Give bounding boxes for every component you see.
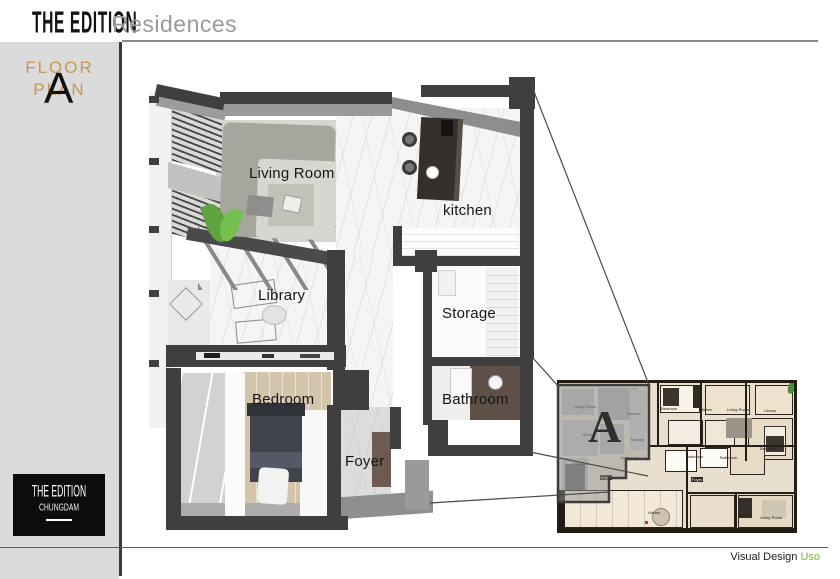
slide: THE EDITION Residences FLOOR PLAN A THE … [0, 0, 840, 579]
coffee-table [282, 194, 303, 213]
credit: Visual Design Uso [560, 551, 820, 563]
footer-logo-box: THE EDITION CHUNGDAM [13, 474, 105, 536]
footer-logo-line2: CHUNGDAM [20, 502, 98, 514]
facade-tick-5 [149, 360, 159, 367]
inset-label: Living Room [760, 515, 782, 520]
plan-letter: A [44, 64, 73, 114]
wall-hall-block [415, 250, 437, 272]
storage-box [438, 270, 456, 296]
inset-wall [557, 528, 797, 533]
inset-label: Bedroom [661, 406, 677, 411]
inset-label: Kitchen [699, 407, 712, 412]
label-bedroom: Bedroom [252, 391, 314, 408]
label-library: Library [258, 287, 305, 304]
inset-wall [557, 380, 797, 383]
inset-bed [663, 388, 679, 406]
wall-storage-left [423, 262, 432, 360]
desk-item-1 [262, 354, 274, 358]
inset-sofa [726, 418, 752, 438]
top-soffit [222, 104, 392, 116]
wall-corner-block [509, 77, 535, 109]
inset-label: Kitchen [627, 411, 640, 416]
inset-label: Bedroom [760, 446, 776, 451]
wall-top-right [421, 85, 513, 97]
inset-room [690, 495, 735, 528]
wall-foyer-left-column [327, 405, 341, 530]
wall-top [220, 92, 392, 104]
side-table [246, 195, 274, 218]
inset-label: Library [764, 408, 776, 413]
inset-wall [557, 490, 565, 530]
inset-wall [686, 492, 796, 494]
bedroom-right-wall [300, 410, 327, 516]
label-kitchen: kitchen [443, 202, 492, 219]
footer-logo-line1: THE EDITION [23, 483, 95, 501]
inset-label: Bathroom [720, 455, 737, 460]
footer-divider [0, 547, 828, 548]
wall-foyer-right [390, 407, 401, 449]
inset-room [668, 420, 703, 445]
facade-tick-2 [149, 158, 159, 165]
bed-blanket [250, 452, 302, 468]
bed-pillow [257, 467, 289, 505]
desk-laptop [204, 353, 220, 358]
inset-wall [657, 383, 659, 445]
island-appliance [441, 120, 453, 136]
wall-bathroom-top [423, 357, 521, 366]
corner-shade [405, 460, 429, 510]
footer-logo-rule [46, 519, 72, 521]
inset-wall [735, 492, 737, 532]
sidebar-divider [119, 42, 122, 576]
label-foyer: Foyer [345, 453, 384, 470]
inset-label: Foyer [600, 475, 612, 480]
label-storage: Storage [442, 305, 496, 322]
credit-name: Uso [800, 551, 820, 563]
inset-wall [745, 383, 747, 461]
kitchen-island [417, 117, 463, 201]
wall-below-bathroom [428, 420, 448, 445]
facade-tick-3 [149, 226, 159, 233]
bar-stool-1 [402, 132, 417, 147]
inset-label: Bathroom [686, 454, 703, 459]
credit-label: Visual Design [730, 551, 797, 563]
wall-right-lower [520, 358, 533, 454]
desk-item-2 [300, 354, 320, 358]
kitchen-sink [426, 166, 439, 179]
inset-unit-letter: A [588, 400, 621, 453]
wall-hall-stub [393, 226, 402, 262]
bathroom-sink [488, 375, 503, 390]
wall-bottom-right [428, 445, 533, 456]
inset-label: Foyer [691, 477, 703, 482]
inset-label: Kitchen [738, 513, 751, 518]
wall-storage-top [393, 256, 521, 266]
wall-bedroom-bottom [166, 516, 348, 530]
inset-label: Library [648, 510, 660, 515]
label-bathroom: Bathroom [442, 391, 509, 408]
wall-bedroom-left [166, 368, 181, 518]
closet-shelving [181, 373, 225, 503]
label-living-room: Living Room [249, 165, 335, 182]
inset-wall [700, 383, 702, 447]
inset-label: Bathroom [621, 455, 638, 460]
inset-label: Bedroom [573, 461, 589, 466]
bedroom-divider-wall [225, 373, 245, 516]
wall-right-upper [520, 108, 534, 358]
bar-stool-2 [402, 160, 417, 175]
facade-tick-1 [149, 96, 159, 103]
facade-tick-4 [149, 290, 159, 297]
inset-label: Storage [630, 437, 644, 442]
inset-wall [794, 380, 797, 533]
wall-entry-closet [333, 370, 369, 410]
inset-label: Living Room [727, 407, 749, 412]
inset-marker-dot [645, 521, 648, 524]
wall-bathroom-left [423, 357, 432, 425]
inset-unit-a-bed [565, 464, 585, 492]
